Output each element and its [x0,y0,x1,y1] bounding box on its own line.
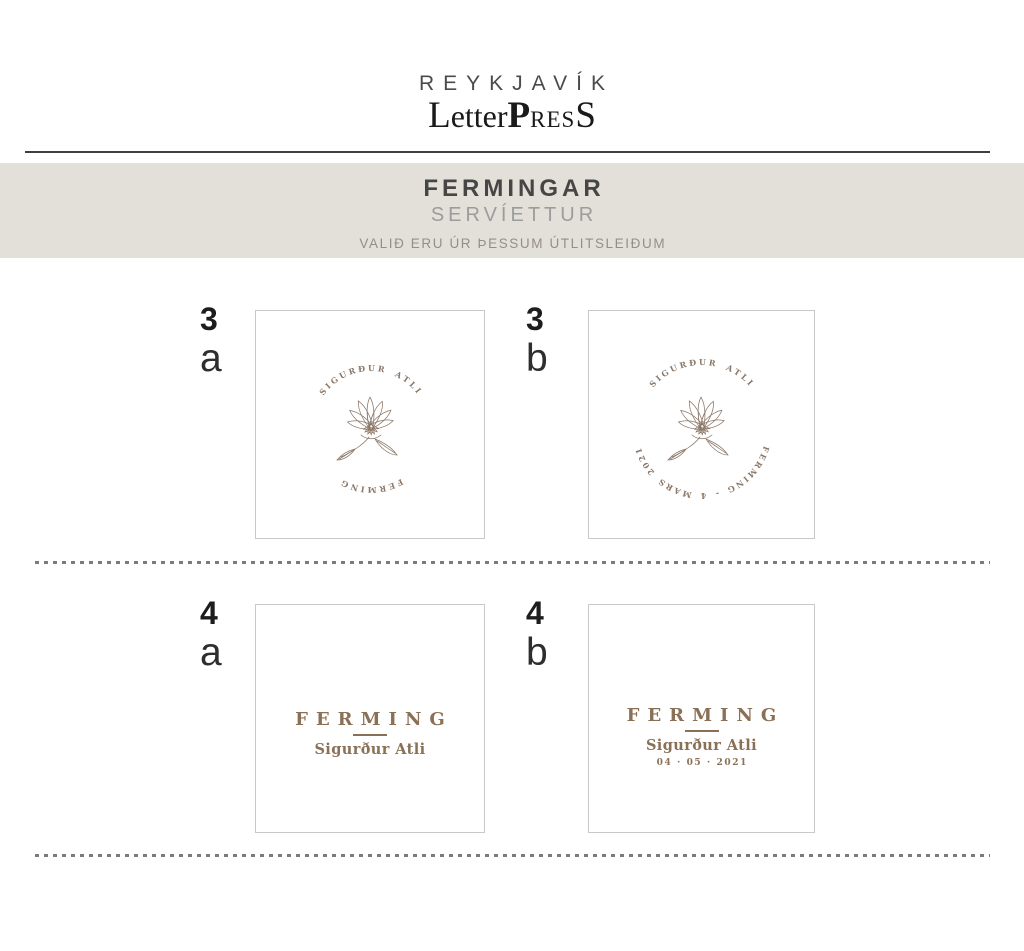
logo-letters-etter: etter [451,98,508,134]
typographic-design-4a: FERMING Sigurður Atli [256,709,484,758]
brand-logo: REYKJAVÍK LetterPresS [0,72,1024,134]
page-subtitle: SERVÍETTUR [0,204,1024,227]
swatch-letter: b [526,339,572,378]
dotted-separator-1 [35,561,990,564]
header-divider [25,151,990,153]
swatch-label-4a: 4 a [200,597,246,672]
logo-letter-s: S [575,95,596,136]
brand-name-line1: REYKJAVÍK [0,72,1024,96]
design-option-4b[interactable]: FERMING Sigurður Atli 04 · 05 · 2021 [588,604,815,833]
arc-event-date-text: FERMING - 4 MARS 2021 [632,445,771,501]
person-name: Sigurður Atli [256,741,484,758]
event-date: 04 · 05 · 2021 [589,758,814,768]
flower-illustration [337,397,397,460]
category-banner: FERMINGAR SERVÍETTUR VALIÐ ERU ÚR ÞESSUM… [0,163,1024,258]
dotted-separator-2 [35,854,990,857]
arc-name-text: SIGURÐUR ATLI [647,357,757,389]
swatch-number: 3 [200,301,218,337]
typographic-design-4b: FERMING Sigurður Atli 04 · 05 · 2021 [589,705,814,768]
circular-monogram-3a: SIGURÐUR ATLI FERMING [291,349,451,509]
swatch-letter: a [200,339,246,378]
swatch-number: 4 [526,595,544,631]
event-title: FERMING [589,705,814,726]
design-option-3a[interactable]: SIGURÐUR ATLI FERMING [255,310,485,539]
title-rule [685,730,719,732]
person-name: Sigurður Atli [589,737,814,754]
logo-letter-l: L [428,95,451,136]
brand-name-line2: LetterPresS [0,97,1024,134]
circular-monogram-3b: SIGURÐUR ATLI FERMING - 4 MARS 2021 [617,344,787,514]
swatch-number: 3 [526,301,544,337]
design-option-4a[interactable]: FERMING Sigurður Atli [255,604,485,833]
event-title: FERMING [256,709,484,730]
swatch-label-4b: 4 b [526,597,572,672]
selection-note: VALIÐ ERU ÚR ÞESSUM ÚTLITSLEIÐUM [0,236,1024,251]
logo-letters-res: res [530,107,575,132]
swatch-letter: b [526,633,572,672]
arc-event-text: FERMING [337,477,405,495]
page: REYKJAVÍK LetterPresS FERMINGAR SERVÍETT… [0,0,1024,951]
design-option-3b[interactable]: SIGURÐUR ATLI FERMING - 4 MARS 2021 [588,310,815,539]
swatch-number: 4 [200,595,218,631]
title-rule [353,734,387,736]
swatch-label-3b: 3 b [526,303,572,378]
swatch-letter: a [200,633,246,672]
logo-letter-p: P [508,95,531,136]
swatch-label-3a: 3 a [200,303,246,378]
arc-name-text: SIGURÐUR ATLI [317,363,425,397]
page-title: FERMINGAR [0,175,1024,203]
flower-illustration [668,397,728,460]
